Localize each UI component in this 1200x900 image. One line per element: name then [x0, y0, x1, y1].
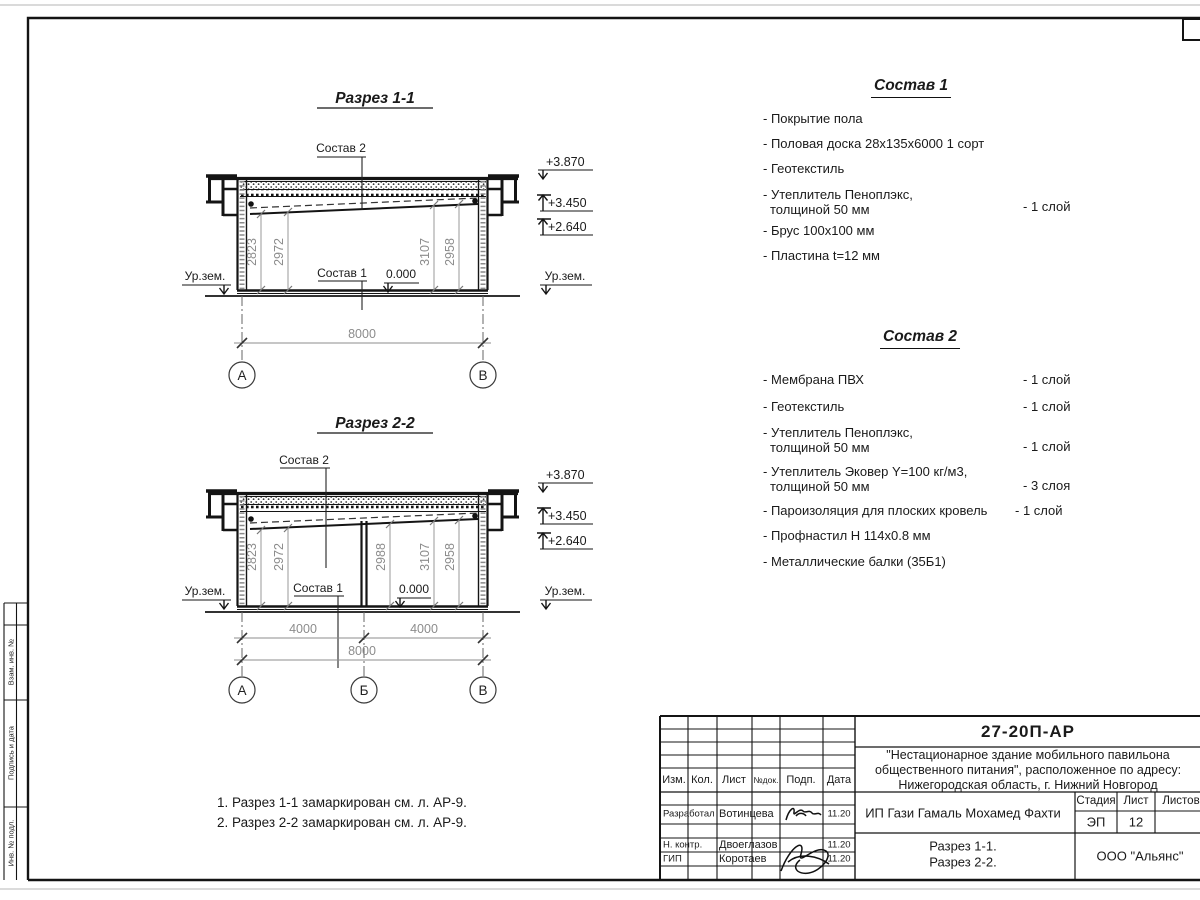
- zero-level-label: 0.000: [386, 267, 416, 281]
- drawing-sheet: Взам. инв. № Подпись и дата Инв. № подл.…: [0, 0, 1200, 900]
- note-line: 2. Разрез 2-2 замаркирован см. л. АР-9.: [217, 813, 467, 833]
- list-item: - Геотекстиль - 1 слой: [763, 400, 1103, 414]
- item-qty: - 1 слой: [1023, 400, 1071, 414]
- elevation-mark: +3.870: [546, 468, 585, 482]
- note-line: 1. Разрез 1-1 замаркирован см. л. АР-9.: [217, 793, 467, 813]
- vertical-dim: 2988: [374, 543, 388, 571]
- item-qty: - 3 слоя: [1023, 479, 1070, 493]
- item-qty: - 1 слой: [1023, 440, 1071, 454]
- tb-col-kol: Кол.: [691, 774, 713, 786]
- tb-drawing-title: Разрез 2-2.: [929, 855, 996, 870]
- horizontal-dim: 4000: [410, 622, 438, 636]
- tb-project-line: общественного питания", расположенное по…: [875, 763, 1181, 777]
- ground-level-label: Ур.зем.: [545, 269, 586, 283]
- vertical-dim: 2972: [272, 543, 286, 571]
- notes: 1. Разрез 1-1 замаркирован см. л. АР-9. …: [217, 793, 467, 832]
- tb-client: ИП Гази Гамаль Мохамед Фахти: [865, 806, 1061, 821]
- item-text: - Пластина t=12 мм: [763, 249, 1103, 263]
- tb-name: Коротаев: [719, 853, 767, 865]
- tb-role: Н. контр.: [663, 840, 702, 851]
- item-text: - Профнастил Н 114х0.8 мм: [763, 529, 1103, 543]
- vertical-dim: 2972: [272, 238, 286, 266]
- sostav1-label: Состав 1: [293, 581, 343, 595]
- list-title: Состав 1: [871, 77, 951, 98]
- list-item: - Металлические балки (35Б1): [763, 555, 1103, 569]
- item-qty: - 1 слой: [1023, 200, 1071, 214]
- item-text: - Половая доска 28х135х6000 1 сорт: [763, 137, 1103, 151]
- tb-name: Двоеглазов: [719, 839, 777, 851]
- copy-number-box: [1183, 19, 1200, 40]
- vertical-dim: 3107: [418, 238, 432, 266]
- tb-col-list: Лист: [722, 774, 746, 786]
- ground-level-label: Ур.зем.: [545, 584, 586, 598]
- tb-col-data: Дата: [827, 774, 851, 786]
- tb-organization: ООО "Альянс": [1097, 849, 1184, 864]
- section-title: Разрез 2-2: [335, 415, 415, 432]
- ground-level-label: Ур.зем.: [185, 269, 226, 283]
- sostav2-label: Состав 2: [316, 141, 366, 155]
- vertical-dim: 2823: [245, 543, 259, 571]
- elevation-mark: +3.870: [546, 155, 585, 169]
- tb-date: 11.20: [827, 809, 850, 820]
- tb-stage-label: Стадия: [1076, 795, 1115, 807]
- tb-drawing-title: Разрез 1-1.: [929, 839, 996, 854]
- list-item: - Пароизоляция для плоских кровель - 1 с…: [763, 504, 1103, 518]
- axis-label: Б: [360, 683, 369, 698]
- vertical-dim: 2823: [245, 238, 259, 266]
- list-title: Состав 2: [880, 328, 960, 349]
- horizontal-dim: 4000: [289, 622, 317, 636]
- tb-sheet-label: Лист: [1124, 795, 1149, 807]
- list-item: - Пластина t=12 мм: [763, 249, 1103, 263]
- item-qty: - 1 слой: [1015, 504, 1063, 518]
- vertical-dim: 3107: [418, 543, 432, 571]
- ground-level-label: Ур.зем.: [185, 584, 226, 598]
- list-item: - Профнастил Н 114х0.8 мм: [763, 529, 1103, 543]
- axis-label: А: [237, 368, 246, 383]
- item-qty: - 1 слой: [1023, 373, 1071, 387]
- tb-col-izm: Изм.: [662, 774, 686, 786]
- vertical-dim: 2958: [443, 543, 457, 571]
- list-item: - Мембрана ПВХ - 1 слой: [763, 373, 1103, 387]
- tb-date: 11.20: [827, 854, 850, 865]
- stamp-label-inv: Инв. № подл.: [7, 820, 16, 867]
- tb-role: ГИП: [663, 854, 682, 865]
- elevation-mark: +2.640: [548, 220, 587, 234]
- list-item: - Утеплитель Пеноплэкс, толщиной 50 мм -…: [763, 426, 1103, 454]
- list-item: - Половая доска 28х135х6000 1 сорт: [763, 137, 1103, 151]
- tb-project-line: "Нестационарное здание мобильного павиль…: [886, 748, 1169, 762]
- item-text: - Утеплитель Пеноплэкс,: [763, 426, 1103, 440]
- sostav1-label: Состав 1: [317, 266, 367, 280]
- zero-level-label: 0.000: [399, 582, 429, 596]
- item-text: - Брус 100х100 мм: [763, 224, 1103, 238]
- item-text: - Утеплитель Эковер Y=100 кг/м3,: [763, 465, 1103, 479]
- section-title: Разрез 1-1: [335, 90, 415, 107]
- sostav2-label: Состав 2: [279, 453, 329, 467]
- list-item: - Покрытие пола: [763, 112, 1103, 126]
- elevation-mark: +3.450: [548, 196, 587, 210]
- stamp-label-podpis: Подпись и дата: [7, 725, 16, 780]
- section-1-1-drawing: Разрез 1-1 Состав 2 Состав 1: [182, 90, 593, 388]
- signature: [781, 809, 829, 874]
- axis-label: А: [237, 683, 246, 698]
- tb-date: 11.20: [827, 840, 850, 851]
- tb-project-line: Нижегородская область, г. Нижний Новгоро…: [898, 778, 1157, 792]
- vertical-dim: 2958: [443, 238, 457, 266]
- tb-document-code: 27-20П-АР: [981, 722, 1075, 742]
- elevation-mark: +3.450: [548, 509, 587, 523]
- item-text: - Покрытие пола: [763, 112, 1103, 126]
- item-text: - Геотекстиль: [763, 162, 1103, 176]
- axis-label: В: [478, 683, 487, 698]
- list-item: - Утеплитель Эковер Y=100 кг/м3, толщино…: [763, 465, 1103, 493]
- list-item: - Геотекстиль: [763, 162, 1103, 176]
- tb-sheets-label: Листов: [1162, 795, 1199, 807]
- tb-stage-value: ЭП: [1087, 815, 1106, 830]
- stamp-label-vzam: Взам. инв. №: [7, 639, 16, 685]
- list-item: - Утеплитель Пеноплэкс, толщиной 50 мм -…: [763, 188, 1103, 216]
- horizontal-dim: 8000: [348, 327, 376, 341]
- tb-sheet-value: 12: [1129, 815, 1143, 830]
- axis-label: В: [478, 368, 487, 383]
- tb-name: Вотинцева: [719, 808, 774, 820]
- elevation-mark: +2.640: [548, 534, 587, 548]
- section-2-2-drawing: Разрез 2-2 Состав 2 Состав 1 0.000: [182, 415, 593, 703]
- item-text: - Металлические балки (35Б1): [763, 555, 1103, 569]
- tb-col-ndoc: №док.: [754, 775, 779, 785]
- tb-role: Разработал: [663, 809, 715, 820]
- list-item: - Брус 100х100 мм: [763, 224, 1103, 238]
- horizontal-dim: 8000: [348, 644, 376, 658]
- tb-col-podp: Подп.: [786, 774, 815, 786]
